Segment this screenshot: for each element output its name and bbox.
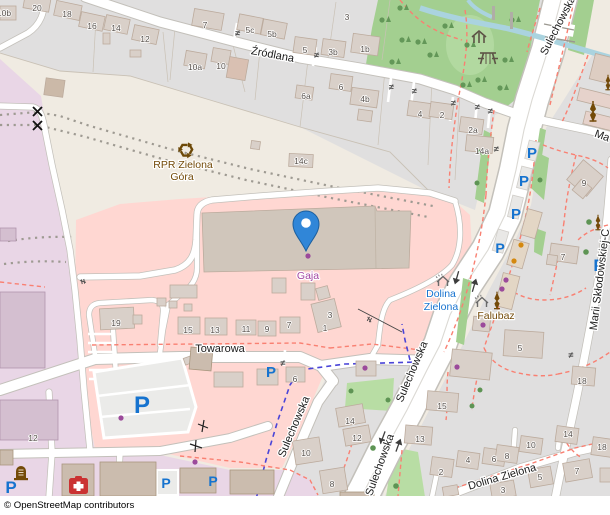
svg-text:19: 19 — [111, 318, 121, 328]
svg-text:14c: 14c — [294, 156, 308, 166]
svg-text:9: 9 — [582, 178, 587, 188]
svg-text:3: 3 — [328, 310, 333, 320]
svg-text:14: 14 — [563, 429, 573, 439]
svg-text:3: 3 — [345, 12, 350, 22]
svg-text:P: P — [527, 145, 537, 162]
svg-text:≠: ≠ — [281, 358, 286, 368]
svg-text:9: 9 — [265, 324, 270, 334]
svg-text:10b: 10b — [0, 8, 11, 18]
svg-text:6a: 6a — [301, 91, 311, 101]
svg-text:14: 14 — [111, 23, 121, 33]
svg-text:7: 7 — [575, 466, 580, 476]
svg-text:10: 10 — [526, 440, 536, 450]
svg-text:1: 1 — [323, 323, 328, 333]
svg-text:P: P — [5, 478, 16, 497]
svg-text:Falubaz: Falubaz — [477, 310, 514, 322]
svg-text:5: 5 — [538, 472, 543, 482]
svg-text:18: 18 — [577, 376, 587, 386]
svg-text:5: 5 — [518, 343, 523, 353]
svg-text:4: 4 — [418, 109, 423, 119]
svg-text:12: 12 — [352, 433, 362, 443]
svg-text:Towarowa: Towarowa — [195, 343, 245, 355]
svg-text:16: 16 — [87, 21, 97, 31]
svg-text:5: 5 — [303, 45, 308, 55]
svg-text:13: 13 — [210, 325, 220, 335]
svg-text:10a: 10a — [188, 62, 202, 72]
svg-text:15: 15 — [183, 325, 193, 335]
svg-text:8: 8 — [505, 451, 510, 461]
svg-text:13: 13 — [415, 434, 425, 444]
svg-text:P: P — [208, 473, 217, 489]
svg-text:10: 10 — [301, 448, 311, 458]
svg-text:P: P — [266, 364, 276, 381]
svg-text:P: P — [519, 173, 529, 190]
svg-text:≠: ≠ — [569, 350, 574, 360]
svg-text:2: 2 — [439, 467, 444, 477]
svg-text:5c: 5c — [246, 25, 256, 35]
svg-text:1b: 1b — [360, 44, 370, 54]
svg-text:4: 4 — [466, 455, 471, 465]
svg-text:7: 7 — [287, 320, 292, 330]
svg-text:6: 6 — [492, 454, 497, 464]
svg-text:2: 2 — [440, 110, 445, 120]
svg-text:P: P — [161, 475, 170, 491]
svg-text:RPR Zielona: RPR Zielona — [153, 159, 213, 171]
svg-text:12: 12 — [28, 433, 38, 443]
svg-text:12: 12 — [140, 34, 150, 44]
svg-text:11: 11 — [242, 324, 251, 334]
svg-text:18: 18 — [62, 9, 72, 19]
svg-text:Gaja: Gaja — [297, 270, 319, 282]
svg-text:6: 6 — [339, 82, 344, 92]
svg-text:Zielona: Zielona — [424, 301, 459, 313]
svg-text:3: 3 — [501, 485, 506, 495]
svg-text:6: 6 — [293, 374, 298, 384]
svg-text:7: 7 — [203, 20, 208, 30]
svg-text:4b: 4b — [360, 94, 370, 104]
svg-text:7: 7 — [561, 252, 566, 262]
svg-text:5b: 5b — [267, 29, 277, 39]
svg-text:3b: 3b — [328, 47, 338, 57]
svg-text:10: 10 — [216, 61, 226, 71]
svg-text:15: 15 — [437, 401, 447, 411]
svg-text:8: 8 — [330, 479, 335, 489]
svg-text:Dolina: Dolina — [426, 288, 456, 300]
svg-text:P: P — [134, 392, 150, 419]
svg-text:20: 20 — [32, 3, 42, 13]
svg-text:14: 14 — [345, 416, 355, 426]
svg-text:P: P — [495, 240, 504, 256]
svg-text:Góra: Góra — [170, 171, 194, 183]
svg-text:P: P — [511, 206, 521, 223]
svg-text:14a: 14a — [475, 146, 489, 156]
svg-text:2a: 2a — [468, 125, 478, 135]
svg-text:18: 18 — [597, 442, 607, 452]
svg-text:© OpenStreetMap contributors: © OpenStreetMap contributors — [4, 500, 134, 511]
